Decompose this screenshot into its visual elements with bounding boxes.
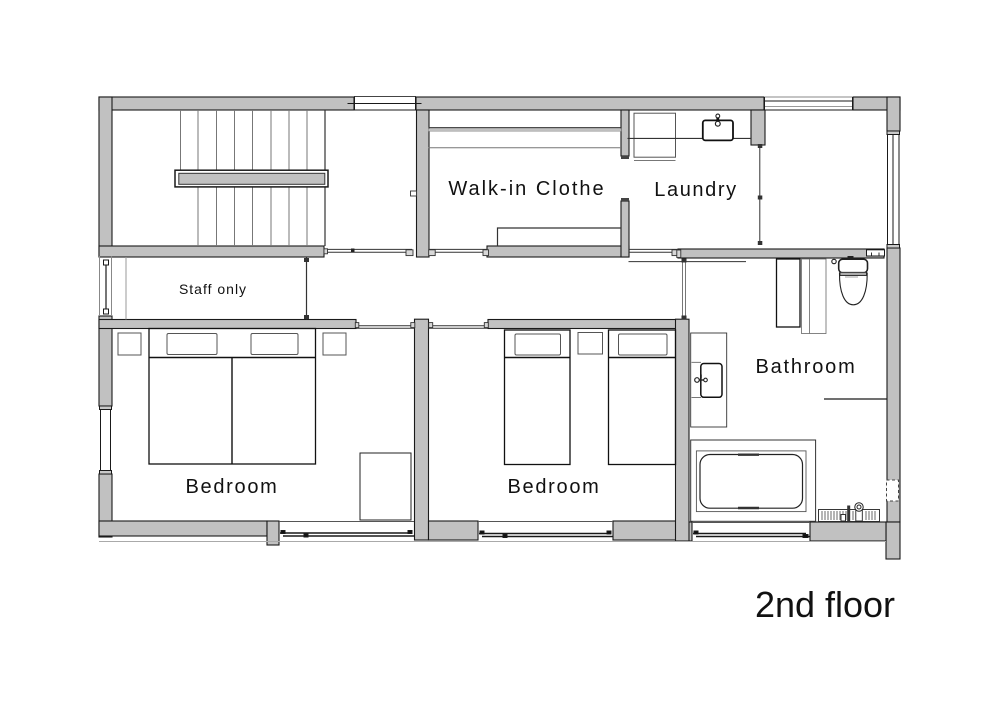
svg-text:Walk-in Clothe: Walk-in Clothe <box>448 178 605 200</box>
svg-text:Bedroom: Bedroom <box>507 476 600 498</box>
svg-text:Staff only: Staff only <box>179 281 247 297</box>
svg-text:Bathroom: Bathroom <box>755 356 856 378</box>
svg-text:2nd floor: 2nd floor <box>755 584 895 625</box>
svg-text:Laundry: Laundry <box>654 179 737 201</box>
svg-text:Bedroom: Bedroom <box>185 476 278 498</box>
